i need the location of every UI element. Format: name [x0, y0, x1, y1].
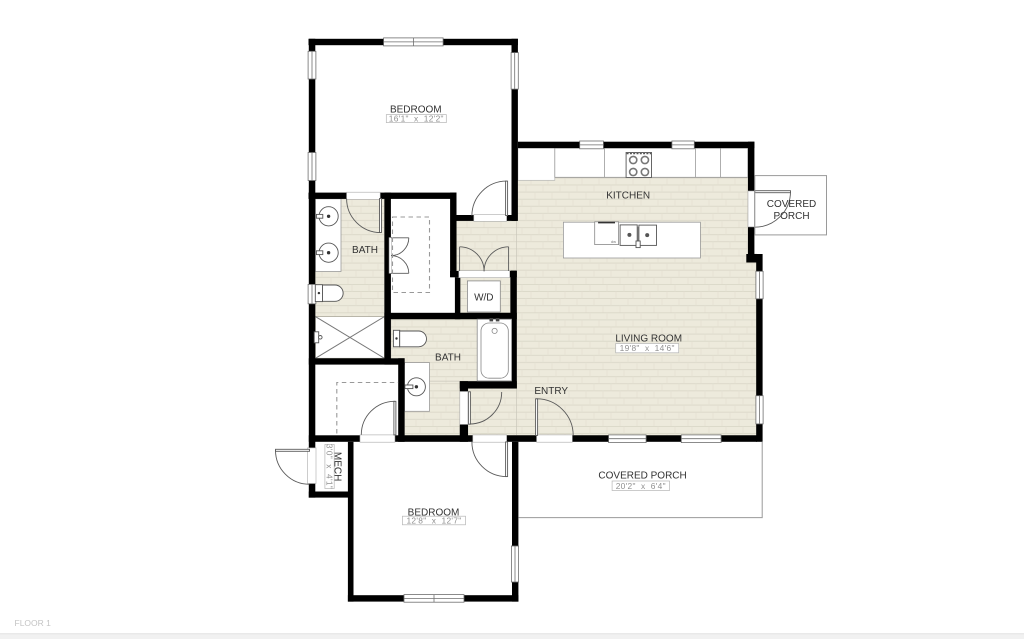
svg-text:W/D: W/D: [474, 292, 493, 303]
svg-text:FLOOR 1: FLOOR 1: [15, 618, 52, 628]
svg-text:16'1" x 12'2": 16'1" x 12'2": [389, 113, 444, 123]
svg-text:12'8" x 12'7": 12'8" x 12'7": [406, 515, 461, 525]
svg-text:BATH: BATH: [352, 245, 378, 256]
svg-text:3'0" x 4'1": 3'0" x 4'1": [325, 444, 335, 489]
svg-text:dw: dw: [611, 239, 616, 244]
svg-text:BATH: BATH: [435, 353, 461, 364]
svg-text:ENTRY: ENTRY: [534, 386, 568, 397]
svg-text:20'2" x 6'4": 20'2" x 6'4": [616, 481, 666, 491]
svg-text:COVERED: COVERED: [767, 199, 816, 210]
svg-text:PORCH: PORCH: [773, 211, 809, 222]
svg-text:KITCHEN: KITCHEN: [606, 191, 650, 202]
svg-text:19'8" x 14'6": 19'8" x 14'6": [620, 343, 675, 353]
